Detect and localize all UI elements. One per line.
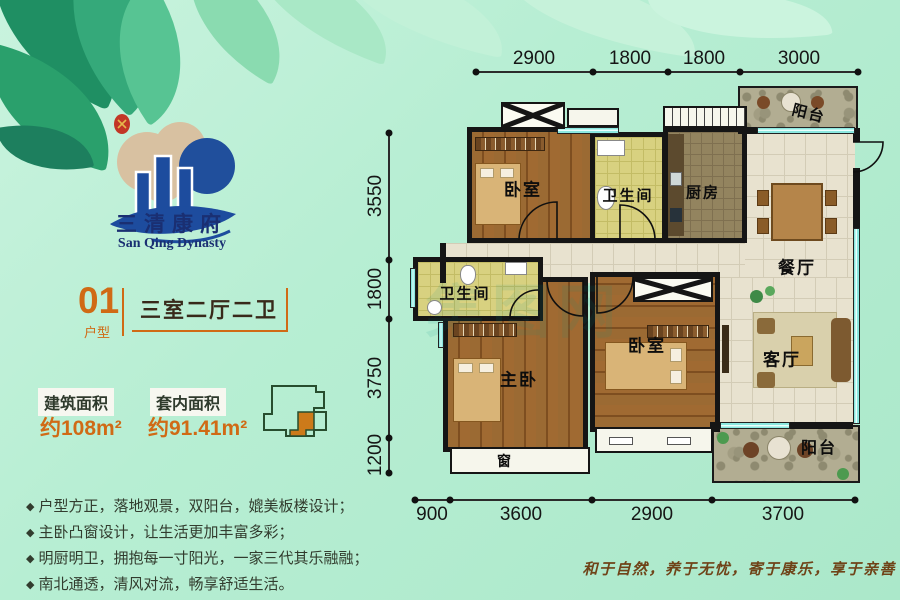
dim-label: 3750 (365, 357, 387, 399)
floorplan-poster: 三清康府 San Qing Dynasty 01 户型 三室二厅二卫 建筑面积 … (0, 0, 900, 600)
dim-label: 3600 (500, 504, 542, 526)
dim-label: 2900 (631, 504, 673, 526)
feature-item: ◆南北通透，清风对流，畅享舒适生活。 (26, 572, 366, 598)
room-label-living: 客厅 (763, 346, 801, 371)
unit-number-label: 户型 (84, 322, 110, 341)
dim-label: 2900 (513, 48, 555, 70)
diamond-bullet-icon: ◆ (26, 579, 34, 591)
dim-label: 900 (416, 504, 448, 526)
dim-label: 3700 (762, 504, 804, 526)
building-keyplan-icon (256, 378, 334, 442)
feature-item: ◆户型方正，落地观景，双阳台，媲美板楼设计； (26, 494, 366, 520)
room-label-bedroom-top: 卧室 (504, 176, 542, 201)
dim-label: 1800 (365, 268, 387, 310)
brand-name-cn: 三清康府 (88, 208, 256, 238)
unit-number: 01 (78, 280, 119, 322)
diamond-bullet-icon: ◆ (26, 553, 34, 565)
slogan: 和于自然，养于无忧，寄于康乐，享于亲善 (560, 558, 896, 579)
room-label-kitchen: 厨房 (686, 182, 720, 203)
feature-item: ◆明厨明卫，拥抱每一寸阳光，一家三代其乐融融； (26, 546, 366, 572)
room-label-bedroom-mid: 卧室 (628, 332, 666, 357)
dim-label: 1800 (609, 48, 651, 70)
room-label-bathroom-left: 卫生间 (439, 283, 490, 304)
diamond-bullet-icon: ◆ (26, 501, 34, 513)
unit-layout-name: 三室二厅二卫 (132, 288, 288, 332)
dim-label: 1800 (683, 48, 725, 70)
divider (122, 288, 124, 336)
floorplan: 集图网 (405, 80, 870, 490)
room-label-dining: 餐厅 (778, 254, 816, 279)
feature-item: ◆主卧凸窗设计，让生活更加丰富多彩； (26, 520, 366, 546)
room-label-master: 主卧 (500, 366, 538, 391)
dim-label: 3000 (778, 48, 820, 70)
room-label-balcony-bottom: 阳台 (801, 434, 837, 458)
diamond-bullet-icon: ◆ (26, 527, 34, 539)
room-label-bay-window: 窗 (497, 451, 513, 471)
feature-list: ◆户型方正，落地观景，双阳台，媲美板楼设计； ◆主卧凸窗设计，让生活更加丰富多彩… (26, 494, 366, 598)
brand-name-en: San Qing Dynasty (88, 236, 256, 252)
dim-label: 1200 (365, 434, 387, 476)
room-label-bathroom-top: 卫生间 (602, 185, 653, 206)
highlighted-unit (290, 412, 314, 436)
building-area-value: 约108m² (40, 412, 122, 442)
dim-label: 3550 (365, 175, 387, 217)
inner-area-value: 约91.41m² (148, 412, 247, 442)
